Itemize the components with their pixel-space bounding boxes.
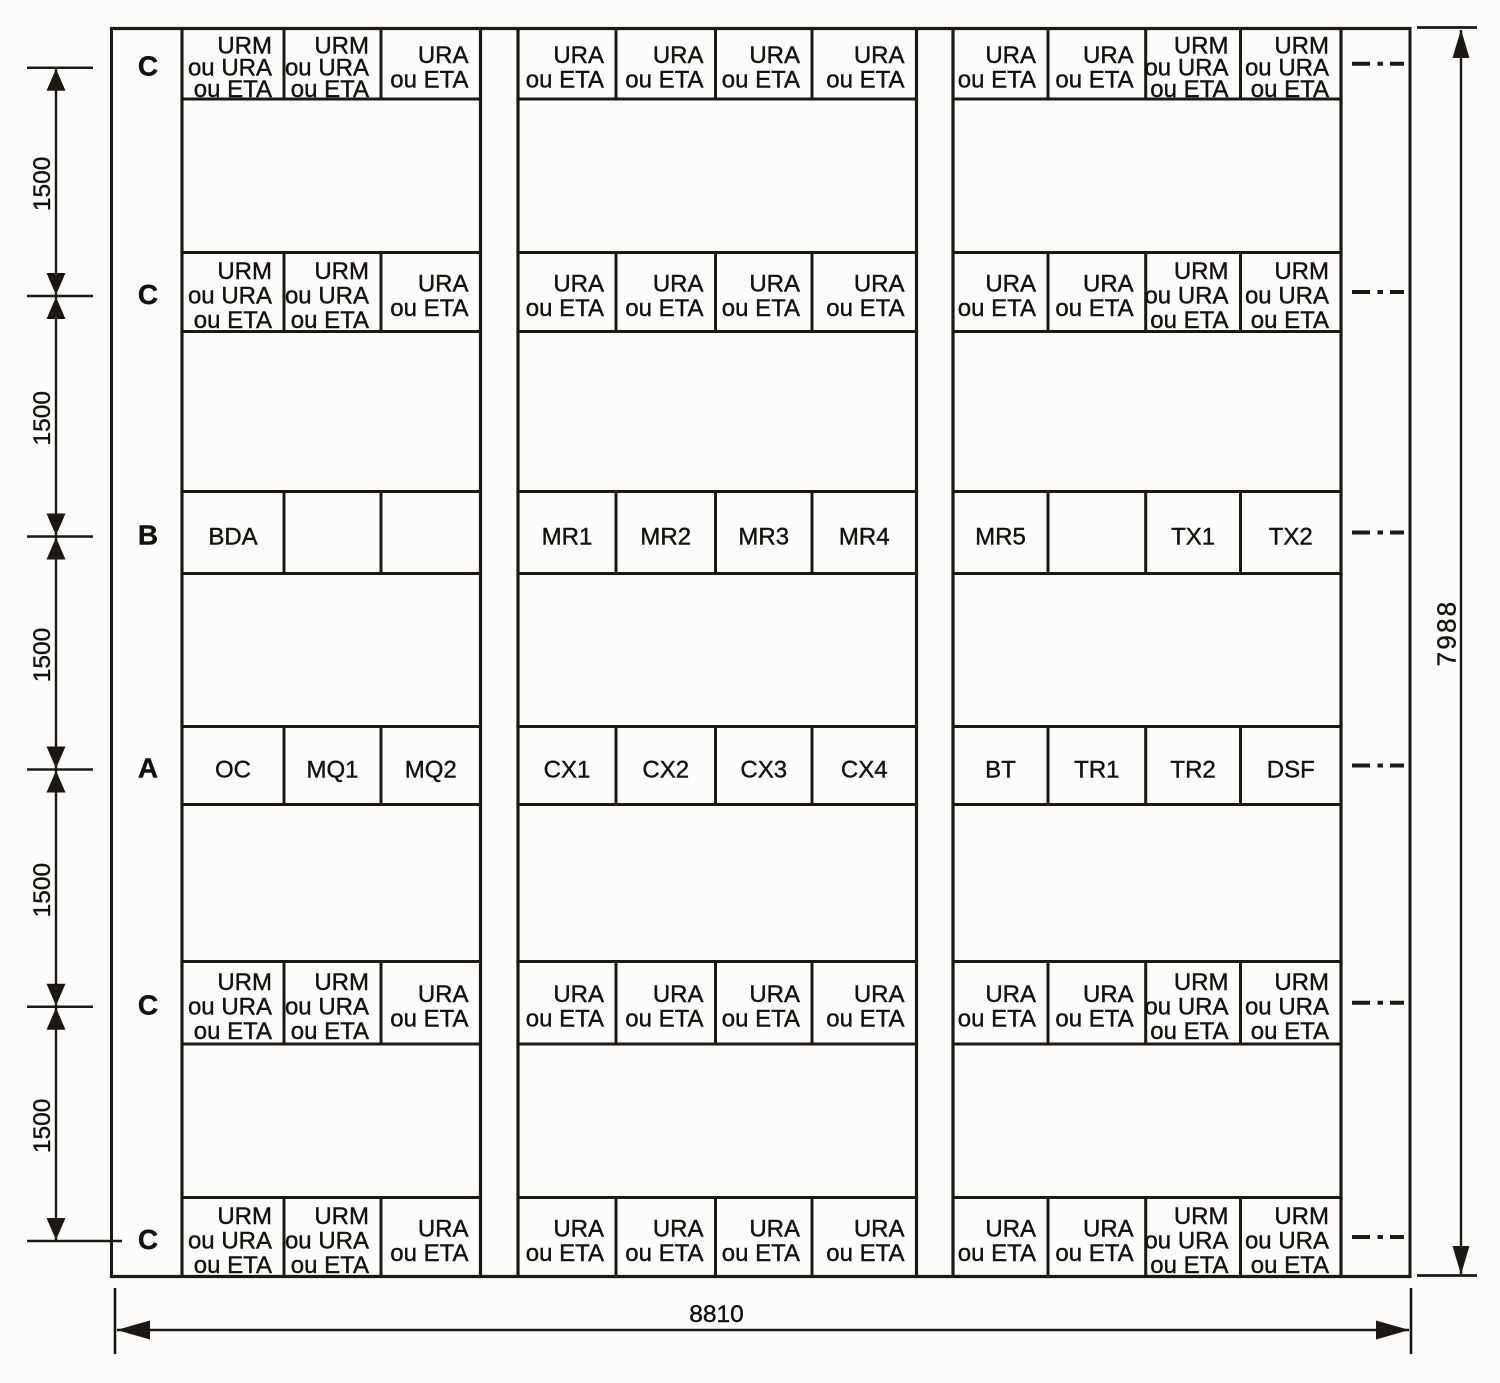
svg-text:URA: URA bbox=[553, 1215, 604, 1242]
svg-text:MR5: MR5 bbox=[975, 524, 1026, 551]
svg-text:ou URA: ou URA bbox=[188, 1228, 272, 1255]
svg-text:URA: URA bbox=[553, 270, 604, 297]
svg-text:URA: URA bbox=[418, 42, 469, 69]
svg-text:BDA: BDA bbox=[208, 524, 257, 551]
svg-text:B: B bbox=[138, 519, 158, 550]
svg-text:URM: URM bbox=[314, 969, 369, 996]
svg-text:ou ETA: ou ETA bbox=[1150, 307, 1228, 334]
svg-text:URM: URM bbox=[314, 258, 369, 285]
svg-text:ou ETA: ou ETA bbox=[526, 295, 604, 322]
svg-text:ou ETA: ou ETA bbox=[625, 295, 703, 322]
svg-text:ou ETA: ou ETA bbox=[390, 295, 468, 322]
svg-text:ou ETA: ou ETA bbox=[390, 1240, 468, 1267]
svg-text:ou ETA: ou ETA bbox=[291, 1252, 369, 1279]
svg-text:URM: URM bbox=[217, 969, 272, 996]
svg-text:URA: URA bbox=[985, 270, 1036, 297]
svg-text:URA: URA bbox=[749, 1215, 800, 1242]
svg-text:URM: URM bbox=[1174, 258, 1229, 285]
svg-text:ou ETA: ou ETA bbox=[826, 1006, 904, 1033]
svg-text:URA: URA bbox=[985, 981, 1036, 1008]
svg-text:URA: URA bbox=[653, 981, 704, 1008]
svg-text:ou ETA: ou ETA bbox=[194, 76, 272, 103]
svg-text:ou URA: ou URA bbox=[1144, 993, 1228, 1020]
svg-text:URA: URA bbox=[653, 270, 704, 297]
svg-text:ou ETA: ou ETA bbox=[826, 67, 904, 94]
svg-text:URM: URM bbox=[217, 258, 272, 285]
svg-text:ou ETA: ou ETA bbox=[1150, 76, 1228, 103]
svg-text:ou ETA: ou ETA bbox=[958, 1240, 1036, 1267]
svg-text:URM: URM bbox=[217, 1203, 272, 1230]
svg-text:DSF: DSF bbox=[1267, 757, 1315, 784]
svg-text:ou ETA: ou ETA bbox=[526, 1006, 604, 1033]
svg-text:ou URA: ou URA bbox=[188, 993, 272, 1020]
svg-text:ou ETA: ou ETA bbox=[826, 1240, 904, 1267]
svg-text:ou ETA: ou ETA bbox=[1251, 1252, 1329, 1279]
svg-text:URA: URA bbox=[854, 981, 905, 1008]
svg-text:URA: URA bbox=[749, 42, 800, 69]
svg-text:TX1: TX1 bbox=[1171, 524, 1215, 551]
svg-text:1500: 1500 bbox=[29, 863, 56, 918]
svg-text:URA: URA bbox=[1083, 42, 1134, 69]
svg-text:OC: OC bbox=[215, 757, 251, 784]
svg-text:URA: URA bbox=[553, 981, 604, 1008]
svg-text:ou ETA: ou ETA bbox=[194, 307, 272, 334]
svg-text:ou URA: ou URA bbox=[188, 283, 272, 310]
svg-text:ou ETA: ou ETA bbox=[625, 1240, 703, 1267]
svg-text:TR2: TR2 bbox=[1170, 757, 1215, 784]
svg-text:MR2: MR2 bbox=[640, 524, 691, 551]
svg-text:URA: URA bbox=[418, 270, 469, 297]
svg-text:ou ETA: ou ETA bbox=[722, 295, 800, 322]
svg-text:CX2: CX2 bbox=[642, 757, 689, 784]
svg-text:ou ETA: ou ETA bbox=[625, 1006, 703, 1033]
svg-text:ou URA: ou URA bbox=[285, 283, 369, 310]
svg-text:ou ETA: ou ETA bbox=[625, 67, 703, 94]
svg-text:URM: URM bbox=[1174, 969, 1229, 996]
svg-text:ou ETA: ou ETA bbox=[1055, 295, 1133, 322]
svg-text:URA: URA bbox=[749, 270, 800, 297]
svg-text:CX1: CX1 bbox=[544, 757, 591, 784]
svg-text:ou ETA: ou ETA bbox=[722, 1006, 800, 1033]
svg-text:URA: URA bbox=[653, 1215, 704, 1242]
svg-text:ou ETA: ou ETA bbox=[526, 1240, 604, 1267]
svg-text:C: C bbox=[138, 279, 158, 310]
svg-text:TX2: TX2 bbox=[1269, 524, 1313, 551]
svg-text:1500: 1500 bbox=[29, 628, 56, 683]
svg-text:ou ETA: ou ETA bbox=[958, 295, 1036, 322]
svg-text:ou ETA: ou ETA bbox=[291, 307, 369, 334]
svg-text:ou ETA: ou ETA bbox=[1150, 1018, 1228, 1045]
svg-text:ou ETA: ou ETA bbox=[1055, 1006, 1133, 1033]
svg-text:C: C bbox=[138, 1224, 158, 1255]
svg-text:CX3: CX3 bbox=[740, 757, 787, 784]
svg-text:URA: URA bbox=[1083, 270, 1134, 297]
svg-text:URA: URA bbox=[418, 1215, 469, 1242]
svg-text:ou ETA: ou ETA bbox=[291, 1018, 369, 1045]
svg-text:ou ETA: ou ETA bbox=[958, 1006, 1036, 1033]
svg-text:ou URA: ou URA bbox=[1245, 1228, 1329, 1255]
svg-text:A: A bbox=[138, 752, 158, 783]
svg-text:URA: URA bbox=[749, 981, 800, 1008]
svg-text:TR1: TR1 bbox=[1074, 757, 1119, 784]
svg-text:ou ETA: ou ETA bbox=[390, 67, 468, 94]
svg-text:ou URA: ou URA bbox=[1245, 993, 1329, 1020]
svg-text:URM: URM bbox=[314, 1203, 369, 1230]
svg-text:URA: URA bbox=[653, 42, 704, 69]
svg-text:ou ETA: ou ETA bbox=[291, 76, 369, 103]
svg-text:ou ETA: ou ETA bbox=[194, 1252, 272, 1279]
svg-text:URA: URA bbox=[985, 1215, 1036, 1242]
svg-text:1500: 1500 bbox=[29, 1099, 56, 1154]
svg-text:ou URA: ou URA bbox=[1144, 1228, 1228, 1255]
svg-text:MQ2: MQ2 bbox=[405, 757, 457, 784]
svg-text:URM: URM bbox=[1274, 969, 1329, 996]
svg-text:7988: 7988 bbox=[1432, 600, 1462, 667]
svg-text:URA: URA bbox=[1083, 1215, 1134, 1242]
svg-text:CX4: CX4 bbox=[841, 757, 888, 784]
svg-text:C: C bbox=[138, 990, 158, 1021]
svg-text:MR1: MR1 bbox=[542, 524, 593, 551]
svg-text:ou URA: ou URA bbox=[285, 1228, 369, 1255]
svg-text:ou ETA: ou ETA bbox=[1150, 1252, 1228, 1279]
svg-text:MQ1: MQ1 bbox=[306, 757, 358, 784]
svg-text:ou ETA: ou ETA bbox=[826, 295, 904, 322]
svg-text:ou ETA: ou ETA bbox=[390, 1006, 468, 1033]
svg-text:URA: URA bbox=[1083, 981, 1134, 1008]
svg-text:ou ETA: ou ETA bbox=[194, 1018, 272, 1045]
svg-text:ou ETA: ou ETA bbox=[526, 67, 604, 94]
svg-text:ou URA: ou URA bbox=[285, 993, 369, 1020]
svg-text:ou ETA: ou ETA bbox=[958, 67, 1036, 94]
svg-text:ou ETA: ou ETA bbox=[1055, 1240, 1133, 1267]
svg-text:ou ETA: ou ETA bbox=[722, 1240, 800, 1267]
svg-text:BT: BT bbox=[985, 757, 1016, 784]
svg-text:ou ETA: ou ETA bbox=[1055, 67, 1133, 94]
svg-text:URM: URM bbox=[1274, 1203, 1329, 1230]
svg-text:ou URA: ou URA bbox=[1245, 283, 1329, 310]
svg-text:URA: URA bbox=[854, 270, 905, 297]
svg-text:URA: URA bbox=[854, 1215, 905, 1242]
svg-text:URA: URA bbox=[854, 42, 905, 69]
svg-text:URA: URA bbox=[553, 42, 604, 69]
svg-text:1500: 1500 bbox=[29, 391, 56, 446]
svg-text:ou URA: ou URA bbox=[1144, 283, 1228, 310]
svg-text:ou ETA: ou ETA bbox=[1251, 307, 1329, 334]
svg-text:ou ETA: ou ETA bbox=[1251, 1018, 1329, 1045]
svg-text:URA: URA bbox=[418, 981, 469, 1008]
svg-text:1500: 1500 bbox=[29, 157, 56, 212]
svg-text:ou ETA: ou ETA bbox=[1251, 76, 1329, 103]
svg-text:URA: URA bbox=[985, 42, 1036, 69]
svg-text:8810: 8810 bbox=[689, 1301, 744, 1328]
svg-text:URM: URM bbox=[1274, 258, 1329, 285]
svg-text:MR3: MR3 bbox=[738, 524, 789, 551]
svg-text:MR4: MR4 bbox=[839, 524, 890, 551]
svg-text:C: C bbox=[138, 51, 158, 82]
svg-text:URM: URM bbox=[1174, 1203, 1229, 1230]
svg-text:ou ETA: ou ETA bbox=[722, 67, 800, 94]
